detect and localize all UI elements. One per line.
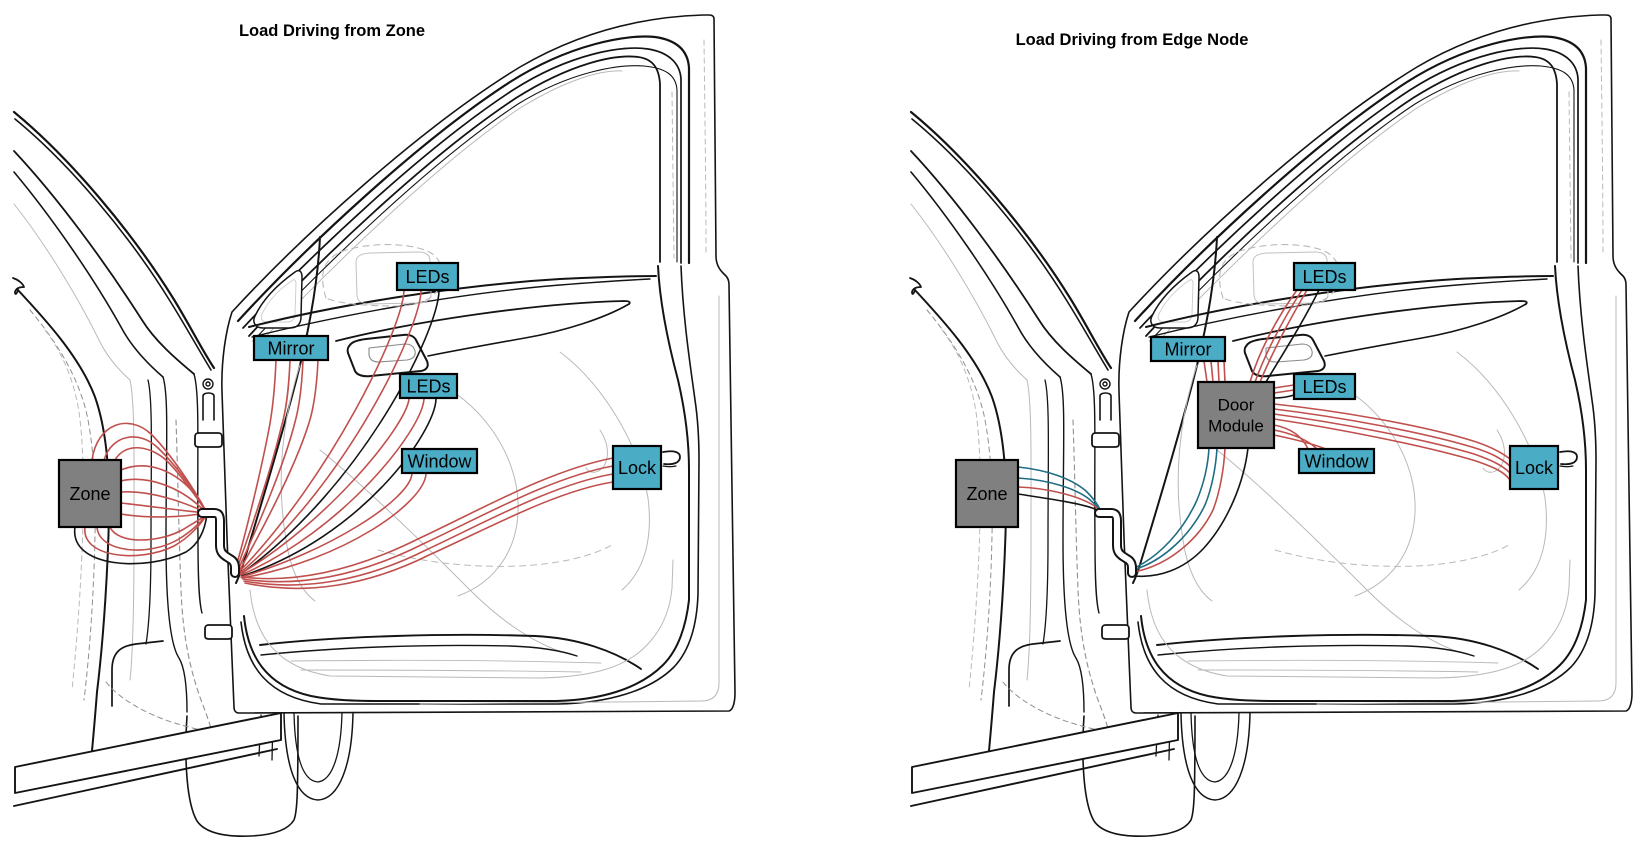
svg-text:Mirror: Mirror (1165, 339, 1212, 359)
svg-text:LEDs: LEDs (1302, 377, 1346, 397)
svg-text:Window: Window (1304, 451, 1369, 471)
svg-text:LEDs: LEDs (406, 376, 450, 396)
svg-text:Zone: Zone (966, 484, 1007, 504)
svg-text:Lock: Lock (618, 458, 657, 478)
svg-text:LEDs: LEDs (1302, 267, 1346, 287)
svg-text:Mirror: Mirror (268, 338, 315, 358)
svg-text:Load Driving from Zone: Load Driving from Zone (239, 22, 425, 40)
svg-text:Door: Door (1218, 395, 1255, 414)
svg-text:Lock: Lock (1515, 458, 1554, 478)
svg-text:Load Driving from Edge Node: Load Driving from Edge Node (1016, 31, 1249, 49)
svg-text:Window: Window (407, 451, 472, 471)
svg-text:Zone: Zone (69, 484, 110, 504)
svg-text:Module: Module (1208, 416, 1264, 435)
svg-text:LEDs: LEDs (405, 267, 449, 287)
